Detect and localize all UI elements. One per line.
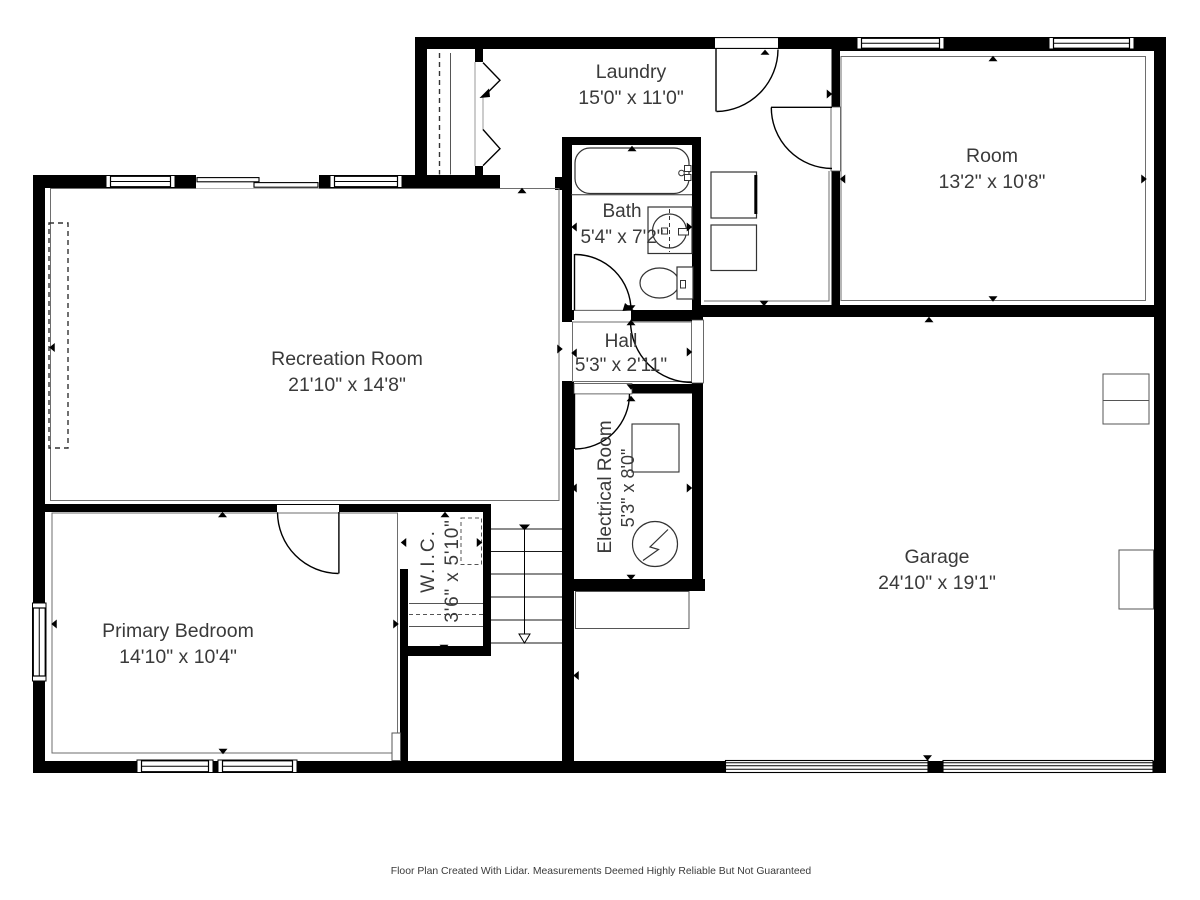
svg-text:Recreation Room: Recreation Room [271, 348, 423, 370]
svg-text:Hall: Hall [605, 331, 638, 352]
svg-text:5'3" x 2'11": 5'3" x 2'11" [575, 355, 667, 376]
svg-text:14'10" x 10'4": 14'10" x 10'4" [119, 646, 237, 668]
svg-text:Laundry: Laundry [596, 61, 667, 83]
svg-text:5'3" x 8'0": 5'3" x 8'0" [618, 449, 638, 528]
svg-text:Floor Plan Created With Lidar.: Floor Plan Created With Lidar. Measureme… [391, 866, 812, 877]
svg-text:Bath: Bath [602, 201, 641, 222]
svg-text:24'10" x 19'1": 24'10" x 19'1" [878, 572, 996, 594]
svg-text:15'0" x 11'0": 15'0" x 11'0" [578, 87, 684, 109]
svg-text:Garage: Garage [904, 546, 969, 568]
svg-text:Room: Room [966, 145, 1018, 167]
svg-text:5'4" x 7'2": 5'4" x 7'2" [580, 227, 663, 248]
svg-text:13'2" x 10'8": 13'2" x 10'8" [939, 171, 1046, 193]
svg-text:W.I.C.: W.I.C. [418, 529, 439, 593]
svg-text:Primary Bedroom: Primary Bedroom [102, 620, 254, 642]
svg-text:3'6" x 5'10": 3'6" x 5'10" [442, 519, 463, 622]
svg-text:Electrical Room: Electrical Room [595, 420, 616, 553]
svg-text:21'10" x 14'8": 21'10" x 14'8" [288, 374, 406, 396]
